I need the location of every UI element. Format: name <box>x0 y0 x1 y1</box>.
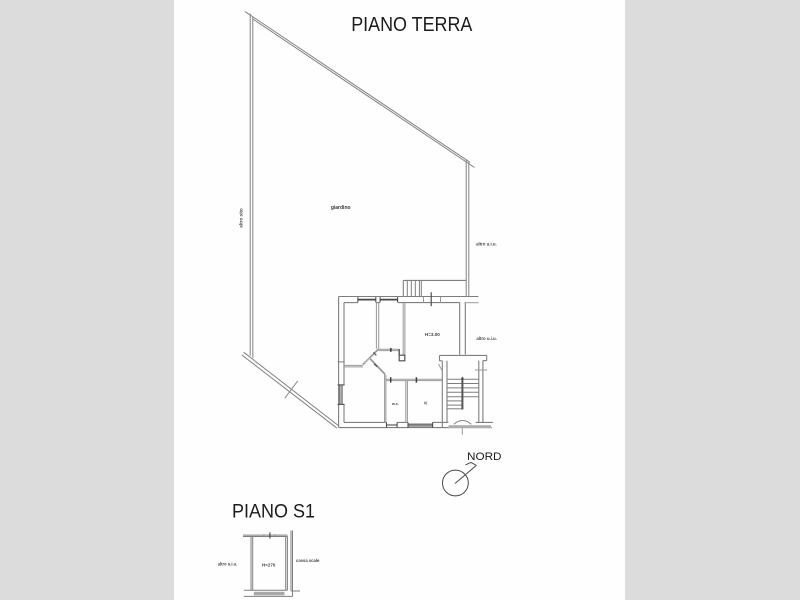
svg-text:giardino: giardino <box>331 205 351 211</box>
svg-text:cassa scale: cassa scale <box>296 558 320 563</box>
svg-text:H=3.00: H=3.00 <box>425 332 440 337</box>
svg-text:PIANO TERRA: PIANO TERRA <box>351 13 472 36</box>
svg-text:w.c.: w.c. <box>391 402 399 406</box>
svg-text:altro u.i.u.: altro u.i.u. <box>476 241 497 246</box>
svg-text:altro u.i.u.: altro u.i.u. <box>218 562 238 567</box>
svg-text:PIANO S1: PIANO S1 <box>232 502 315 523</box>
svg-text:H=270: H=270 <box>262 563 276 568</box>
svg-text:NORD: NORD <box>467 451 502 463</box>
svg-text:altro u.i.u.: altro u.i.u. <box>476 336 497 341</box>
svg-text:altro sito: altro sito <box>239 208 244 228</box>
